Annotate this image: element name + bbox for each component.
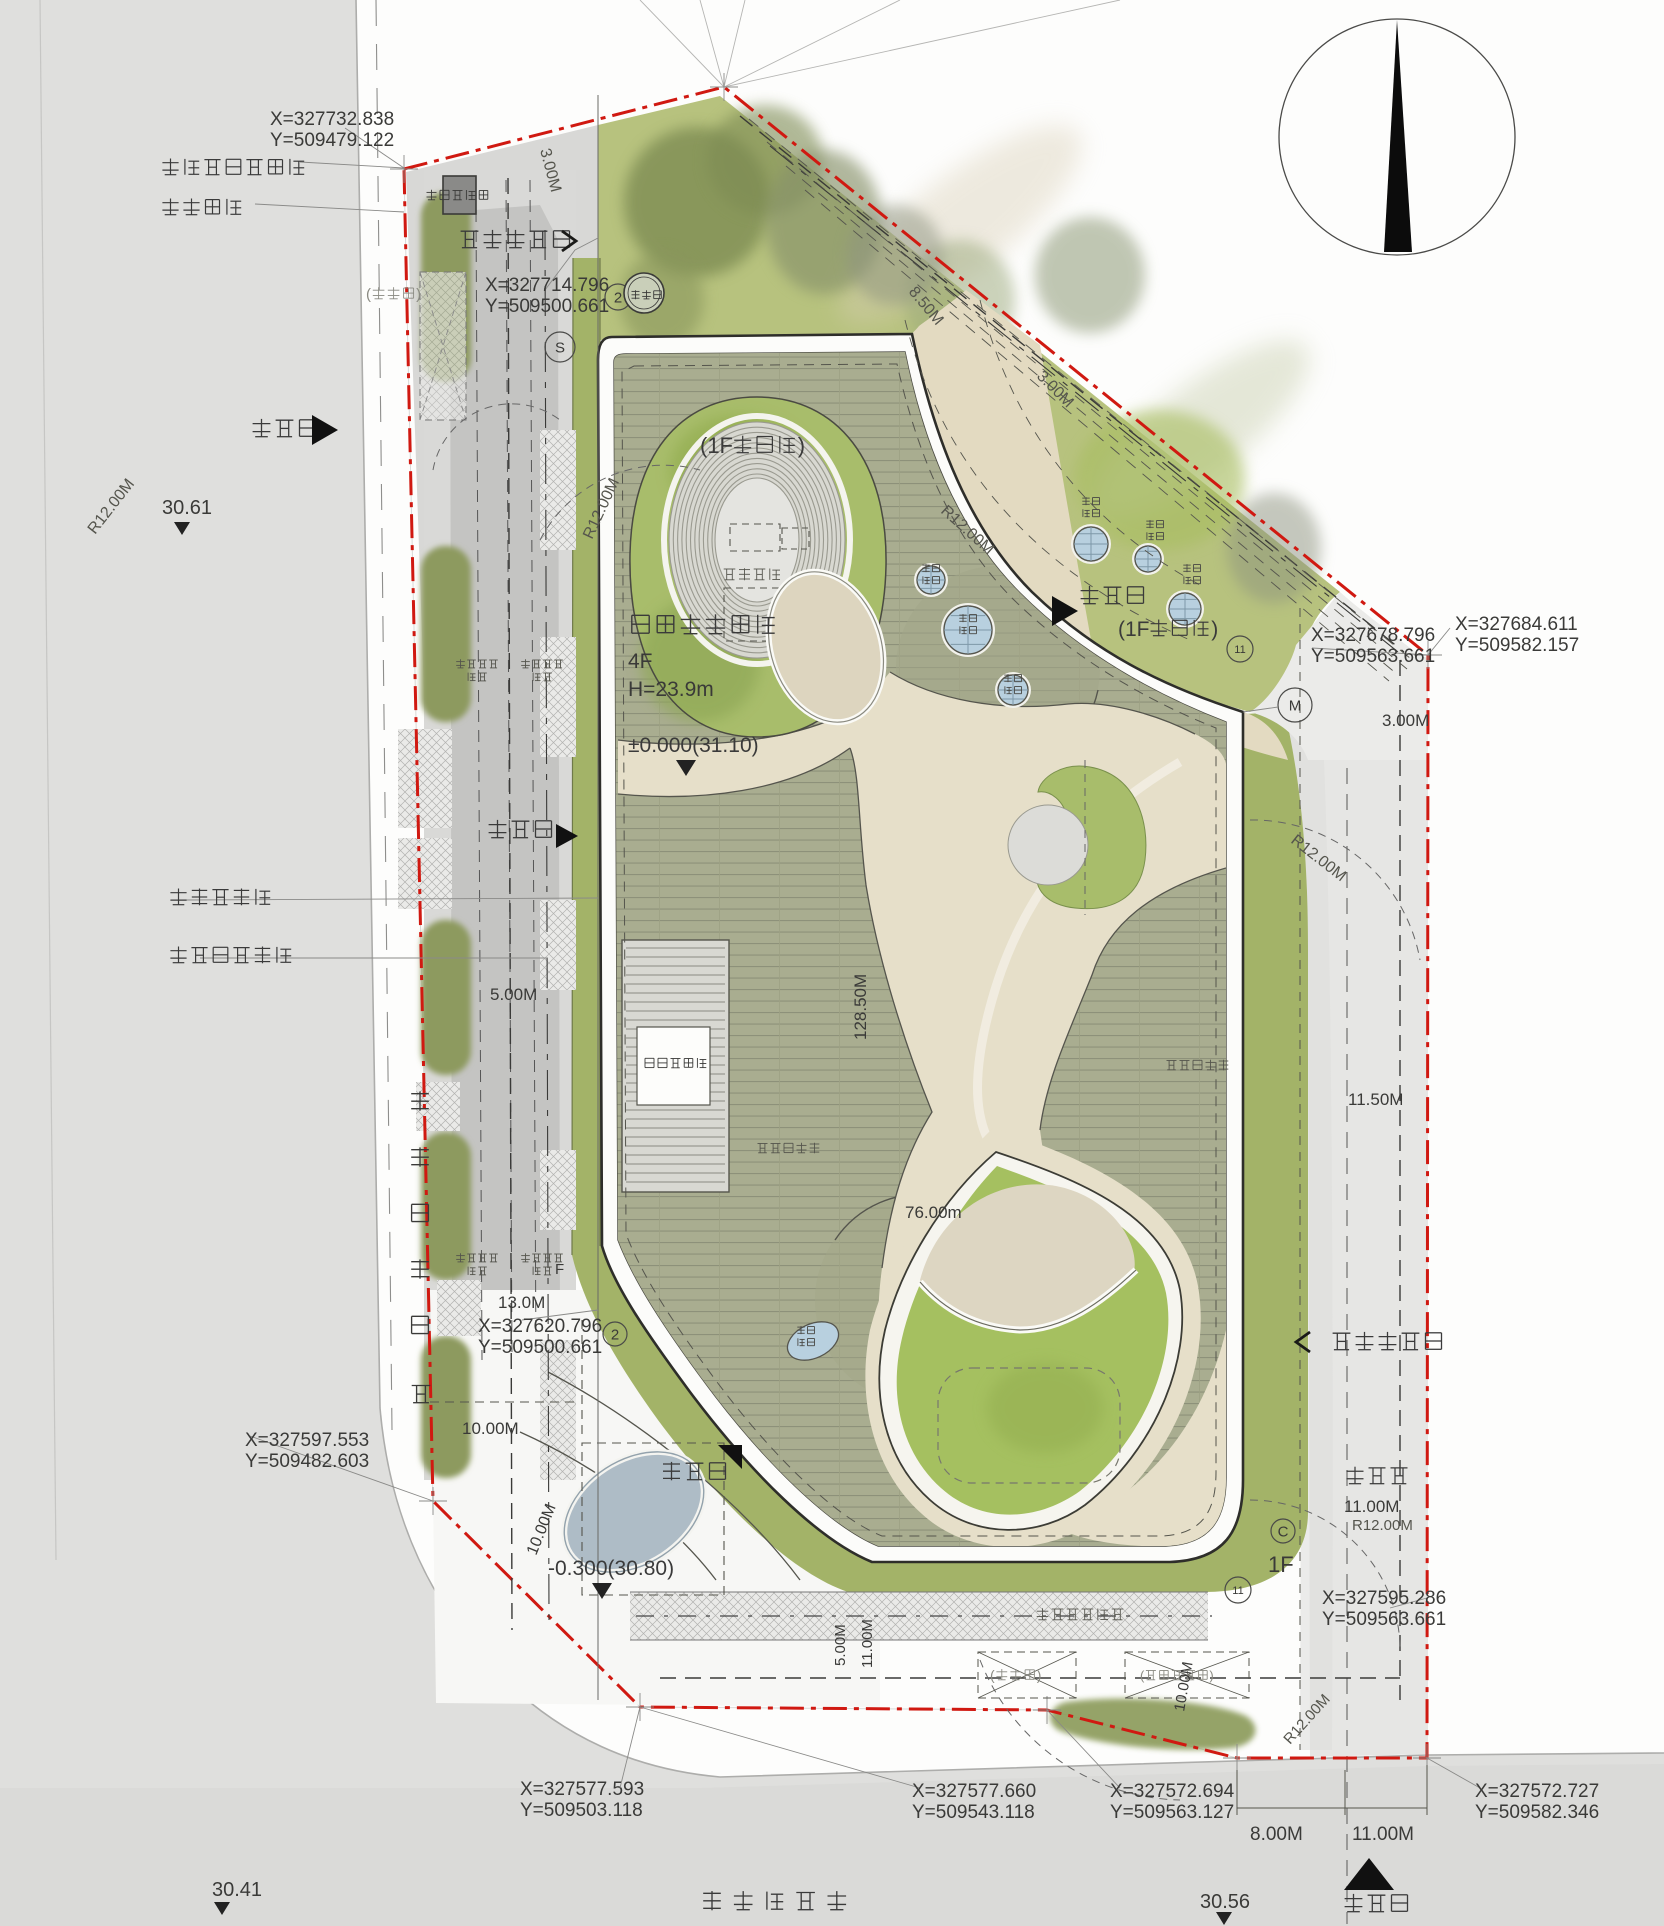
svg-text:X=327620.796: X=327620.796 (478, 1316, 602, 1337)
svg-text:76.00m: 76.00m (905, 1203, 962, 1222)
svg-text:(: ( (1140, 1668, 1145, 1683)
svg-text:30.56: 30.56 (1200, 1891, 1250, 1913)
svg-text:13.0M: 13.0M (498, 1293, 545, 1312)
svg-text:R12.00M: R12.00M (1352, 1517, 1413, 1534)
svg-text:2: 2 (614, 289, 622, 306)
svg-text:X=327577.660: X=327577.660 (912, 1781, 1036, 1802)
svg-text:Y=509500.661: Y=509500.661 (485, 296, 609, 317)
svg-text:(1F: (1F (1118, 618, 1150, 641)
svg-text:8.00M: 8.00M (1250, 1824, 1303, 1845)
svg-text:-0.300(30.80): -0.300(30.80) (548, 1557, 674, 1580)
svg-text:Y=509563.661: Y=509563.661 (1322, 1609, 1446, 1630)
svg-text:X=327732.838: X=327732.838 (270, 109, 394, 130)
svg-text:): ) (798, 433, 805, 458)
svg-text:X=327684.611: X=327684.611 (1455, 614, 1578, 635)
svg-text:Y=509563.661: Y=509563.661 (1311, 646, 1435, 667)
svg-text:128.50M: 128.50M (851, 974, 870, 1040)
svg-text:11.00M: 11.00M (859, 1619, 876, 1668)
svg-text:(: ( (366, 286, 371, 303)
svg-text:Y=509543.118: Y=509543.118 (912, 1802, 1035, 1823)
svg-text:30.41: 30.41 (212, 1879, 262, 1901)
svg-text:M: M (1289, 697, 1302, 714)
svg-text:X=327714.796: X=327714.796 (485, 275, 609, 296)
svg-text:Y=509500.661: Y=509500.661 (478, 1337, 602, 1358)
svg-text:(1F: (1F (700, 433, 733, 458)
svg-text:11.00M: 11.00M (1344, 1497, 1399, 1516)
svg-text:): ) (1209, 1668, 1213, 1683)
svg-text:(: ( (990, 1667, 995, 1683)
svg-text:Y=509503.118: Y=509503.118 (520, 1800, 643, 1821)
svg-text:11.00M: 11.00M (1352, 1824, 1414, 1845)
svg-text:30.61: 30.61 (162, 497, 212, 519)
svg-text:10.00M: 10.00M (462, 1419, 519, 1438)
svg-text:±0.000(31.10): ±0.000(31.10) (628, 734, 759, 757)
svg-text:Y=509582.157: Y=509582.157 (1455, 635, 1579, 656)
svg-text:): ) (416, 286, 421, 303)
svg-text:X=327572.694: X=327572.694 (1110, 1781, 1235, 1802)
svg-text:): ) (1211, 618, 1218, 641)
svg-text:1F: 1F (1268, 1552, 1294, 1577)
svg-text:Y=509582.346: Y=509582.346 (1475, 1802, 1599, 1823)
svg-text:X=327678.796: X=327678.796 (1311, 625, 1435, 646)
svg-text:S: S (555, 339, 565, 356)
svg-text:4F: 4F (628, 650, 653, 673)
svg-text:X=327577.593: X=327577.593 (520, 1779, 644, 1800)
svg-text:2: 2 (611, 1326, 619, 1343)
svg-text:11.50M: 11.50M (1348, 1090, 1403, 1109)
svg-text:F: F (555, 1261, 564, 1278)
svg-text:5.00M: 5.00M (490, 985, 537, 1004)
svg-text:): ) (1037, 1667, 1042, 1683)
svg-text:X=327597.553: X=327597.553 (245, 1430, 369, 1451)
svg-text:11: 11 (1234, 644, 1245, 656)
svg-text:11: 11 (1232, 1585, 1243, 1597)
svg-text:3.00M: 3.00M (1382, 711, 1429, 730)
svg-text:5.00M: 5.00M (832, 1624, 849, 1666)
svg-text:Y=509563.127: Y=509563.127 (1110, 1802, 1234, 1823)
svg-text:Y=509482.603: Y=509482.603 (245, 1451, 369, 1472)
svg-text:C: C (1278, 1523, 1289, 1540)
svg-text:H=23.9m: H=23.9m (628, 678, 714, 701)
svg-text:Y=509479.122: Y=509479.122 (270, 130, 394, 151)
svg-text:X=327595.286: X=327595.286 (1322, 1588, 1446, 1609)
svg-text:X=327572.727: X=327572.727 (1475, 1781, 1599, 1802)
